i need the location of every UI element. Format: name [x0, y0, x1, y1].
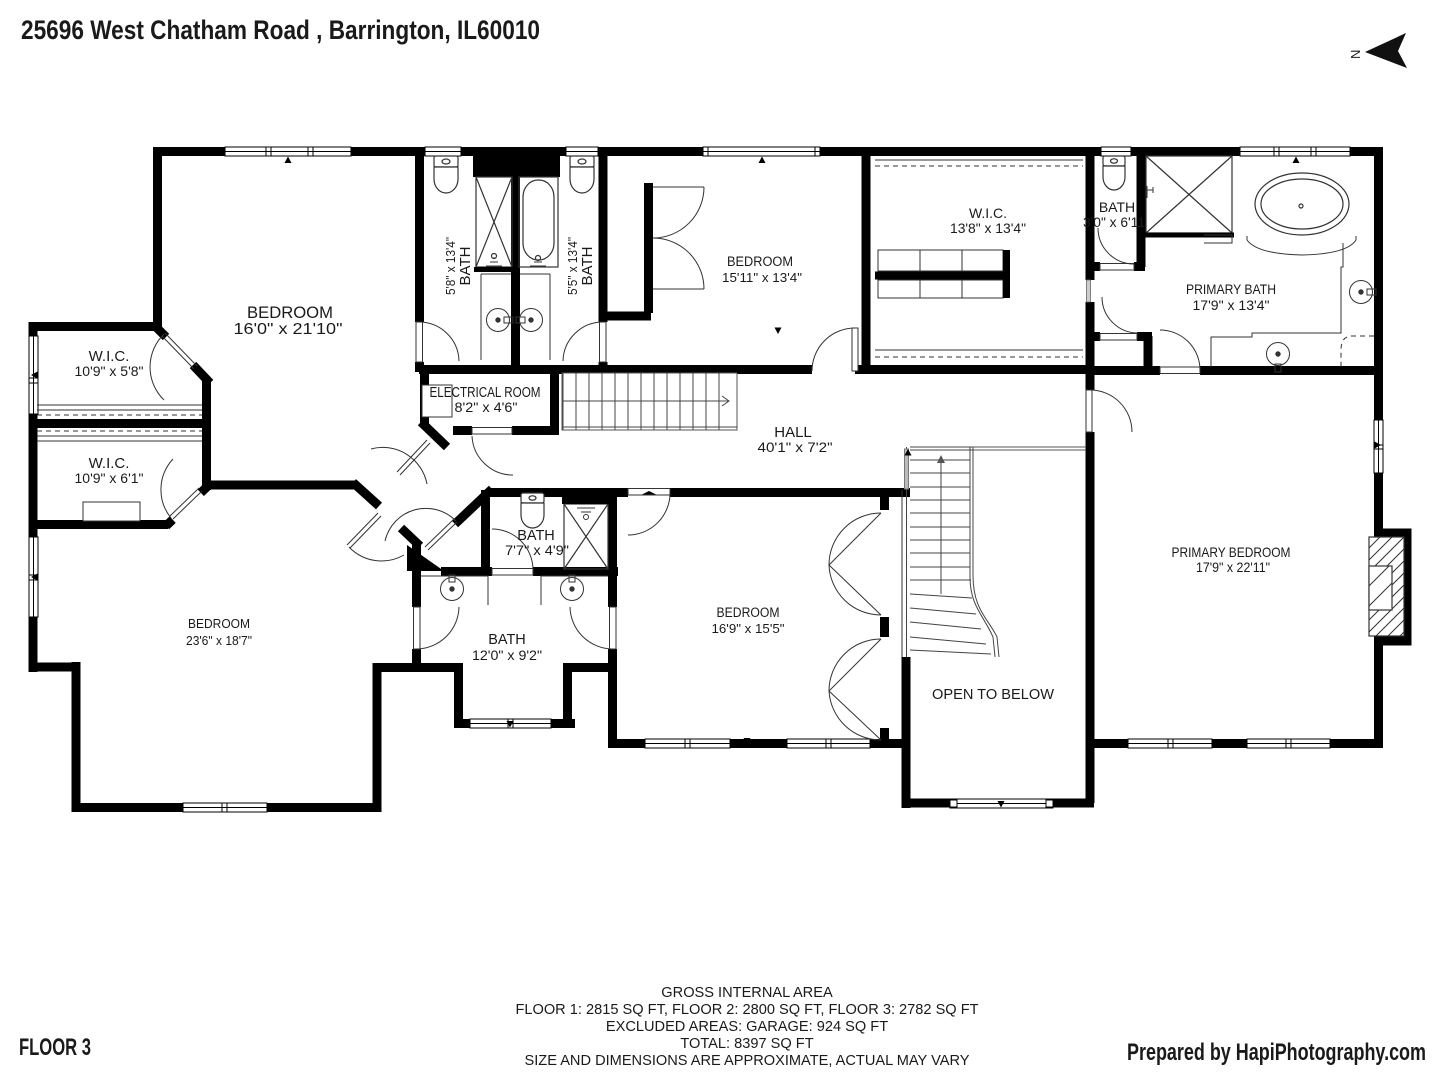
- svg-text:12'0" x 9'2": 12'0" x 9'2": [472, 648, 542, 663]
- svg-text:BEDROOM: BEDROOM: [247, 304, 333, 322]
- svg-text:BATH: BATH: [457, 247, 474, 286]
- svg-text:15'11" x 13'4": 15'11" x 13'4": [722, 270, 802, 285]
- svg-text:BATH: BATH: [579, 247, 596, 286]
- svg-text:13'8" x 13'4": 13'8" x 13'4": [950, 221, 1026, 236]
- svg-text:OPEN TO BELOW: OPEN TO BELOW: [932, 687, 1054, 703]
- svg-text:8'2" x 4'6": 8'2" x 4'6": [455, 399, 518, 415]
- svg-text:SIZE AND DIMENSIONS ARE APPROX: SIZE AND DIMENSIONS ARE APPROXIMATE, ACT…: [525, 1053, 970, 1069]
- svg-text:3'0" x 6'11: 3'0" x 6'11: [1083, 215, 1145, 230]
- svg-text:5'5" x 13'4": 5'5" x 13'4": [565, 237, 580, 295]
- svg-text:Prepared by HapiPhotography.co: Prepared by HapiPhotography.com: [1127, 1039, 1426, 1066]
- svg-text:BATH: BATH: [517, 528, 555, 544]
- svg-text:7'7" x 4'9": 7'7" x 4'9": [505, 543, 569, 558]
- svg-text:25696 West Chatham Road , Barr: 25696 West Chatham Road , Barrington, IL…: [21, 15, 540, 45]
- svg-text:W.I.C.: W.I.C.: [969, 205, 1007, 221]
- svg-text:N: N: [1348, 50, 1363, 59]
- svg-text:17'9" x 13'4": 17'9" x 13'4": [1193, 298, 1270, 313]
- svg-text:5'8" x 13'4": 5'8" x 13'4": [443, 237, 458, 295]
- svg-text:BEDROOM: BEDROOM: [727, 254, 793, 269]
- svg-text:16'9" x 15'5": 16'9" x 15'5": [712, 621, 785, 636]
- svg-text:BEDROOM: BEDROOM: [717, 605, 780, 620]
- svg-text:TOTAL: 8397 SQ FT: TOTAL: 8397 SQ FT: [680, 1036, 813, 1052]
- svg-text:FLOOR 3: FLOOR 3: [19, 1034, 91, 1061]
- svg-text:PRIMARY BEDROOM: PRIMARY BEDROOM: [1172, 544, 1291, 560]
- svg-text:23'6" x 18'7": 23'6" x 18'7": [186, 634, 252, 648]
- svg-text:17'9" x 22'11": 17'9" x 22'11": [1196, 560, 1270, 575]
- svg-text:40'1" x 7'2": 40'1" x 7'2": [758, 439, 833, 455]
- svg-text:BEDROOM: BEDROOM: [188, 616, 250, 631]
- svg-text:10'9" x 5'8": 10'9" x 5'8": [75, 363, 144, 379]
- svg-text:16'0" x 21'10": 16'0" x 21'10": [234, 321, 343, 338]
- svg-text:BATH: BATH: [488, 632, 526, 648]
- svg-text:FLOOR 1: 2815 SQ FT, FLOOR 2:: FLOOR 1: 2815 SQ FT, FLOOR 2: 2800 SQ FT…: [515, 1002, 978, 1018]
- svg-text:PRIMARY BATH: PRIMARY BATH: [1186, 281, 1276, 297]
- svg-text:BATH: BATH: [1099, 199, 1135, 215]
- svg-text:GROSS INTERNAL AREA: GROSS INTERNAL AREA: [661, 985, 833, 1001]
- svg-text:EXCLUDED AREAS: GARAGE: 924 SQ: EXCLUDED AREAS: GARAGE: 924 SQ FT: [606, 1019, 888, 1035]
- svg-text:10'9" x 6'1": 10'9" x 6'1": [75, 470, 144, 486]
